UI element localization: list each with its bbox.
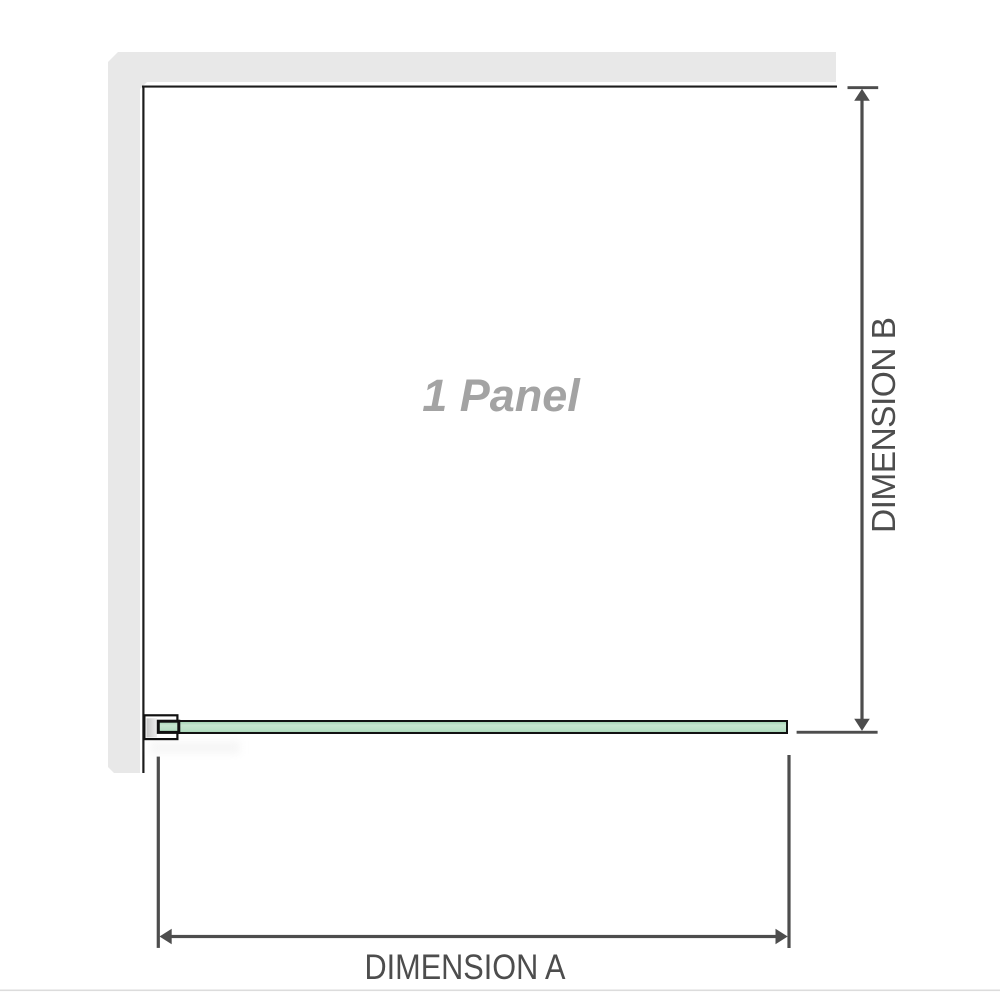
svg-text:1 Panel: 1 Panel [422, 370, 581, 421]
svg-text:DIMENSION A: DIMENSION A [365, 948, 567, 987]
svg-text:DIMENSION B: DIMENSION B [866, 317, 903, 533]
